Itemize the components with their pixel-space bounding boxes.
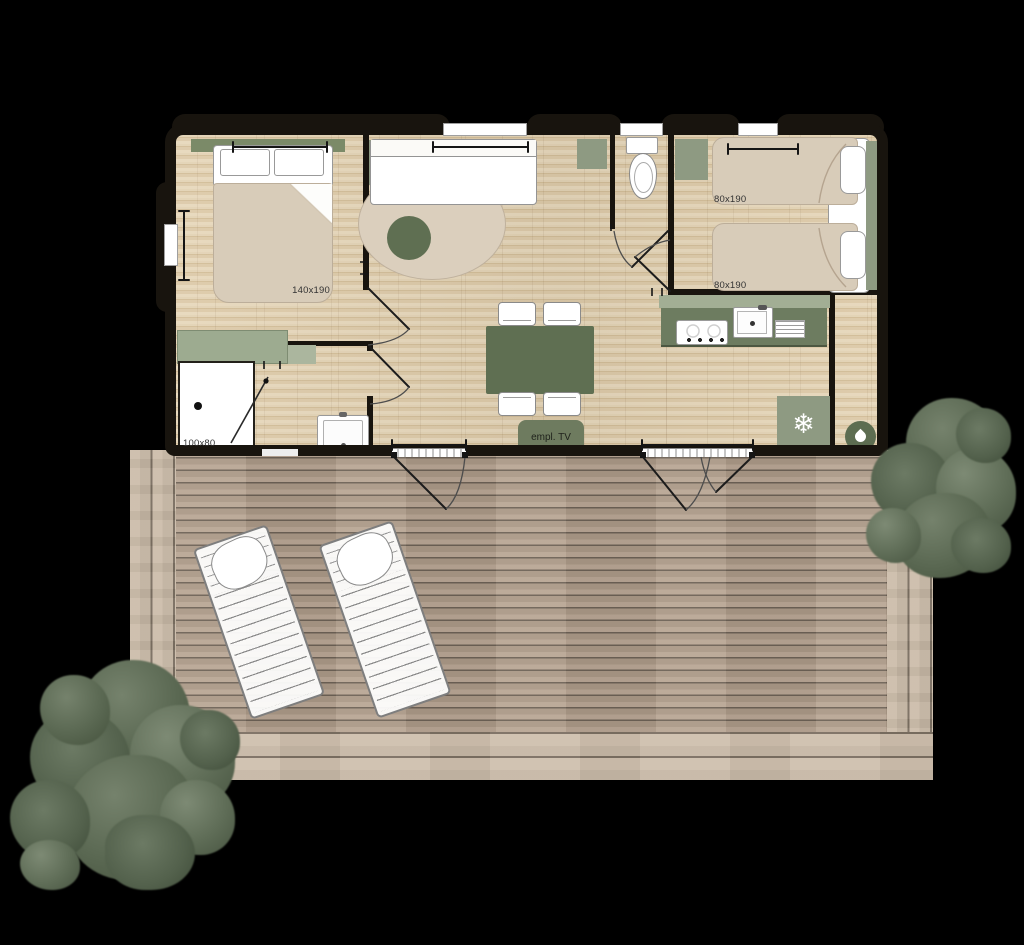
twin-headboard: [866, 141, 878, 290]
shower-drain: [194, 402, 202, 410]
dining-chair: [543, 302, 581, 326]
deck-border-bottom: [130, 732, 933, 780]
coffee-table: [387, 216, 431, 260]
twin-bed-bottom-size-label: 80x190: [714, 280, 766, 291]
wc-cabinet-right: [675, 139, 708, 180]
window-wc: [620, 123, 663, 136]
tv-spot: empl. TV: [518, 420, 584, 454]
pillow: [274, 149, 324, 176]
snowflake-icon: ❄: [792, 411, 815, 438]
sink-faucet: [758, 305, 767, 310]
toilet-bowl-inner: [634, 162, 653, 193]
patio-door-threshold-right: [642, 448, 753, 457]
window-bedroom2: [738, 123, 778, 136]
twin-bed-top-size-label: 80x190: [714, 194, 766, 205]
wc-cabinet-left: [577, 139, 607, 169]
dining-chair: [498, 392, 536, 416]
patio-door-threshold-left: [392, 448, 466, 457]
pillow: [840, 146, 866, 194]
tree-icon-right: [866, 398, 1018, 578]
floor-plan-scene: 140x190 100x80 empl. TV 80x190 80x190: [0, 0, 1024, 945]
cooktop: [676, 320, 728, 345]
dish-drainer: [775, 320, 805, 338]
window-left: [164, 224, 178, 266]
toilet-tank: [626, 137, 658, 154]
washbasin-drain: [341, 443, 346, 448]
tree-icon-left: [10, 650, 240, 895]
tv-spot-label: empl. TV: [531, 432, 571, 443]
pillow: [840, 231, 866, 279]
window-living: [443, 123, 527, 136]
wall-vent: [262, 449, 298, 456]
dining-table: [486, 326, 594, 394]
fridge: ❄: [777, 396, 830, 452]
duvet-fold: [290, 184, 332, 224]
sink-drain: [750, 321, 755, 326]
pillow: [220, 149, 270, 176]
dining-chair: [498, 302, 536, 326]
sofa: [370, 139, 537, 205]
wall-wc-left: [610, 130, 615, 229]
wall-wc-right: [668, 130, 674, 293]
wardrobe: [177, 330, 288, 364]
wardrobe-extension: [288, 345, 316, 364]
dining-chair: [543, 392, 581, 416]
shower-size-label: 100x80: [183, 438, 243, 449]
master-bed-size-label: 140x190: [258, 285, 330, 296]
sofa-backrest: [371, 140, 536, 157]
wall-bathroom-right-stub: [367, 341, 373, 351]
washbasin-faucet: [339, 412, 347, 417]
